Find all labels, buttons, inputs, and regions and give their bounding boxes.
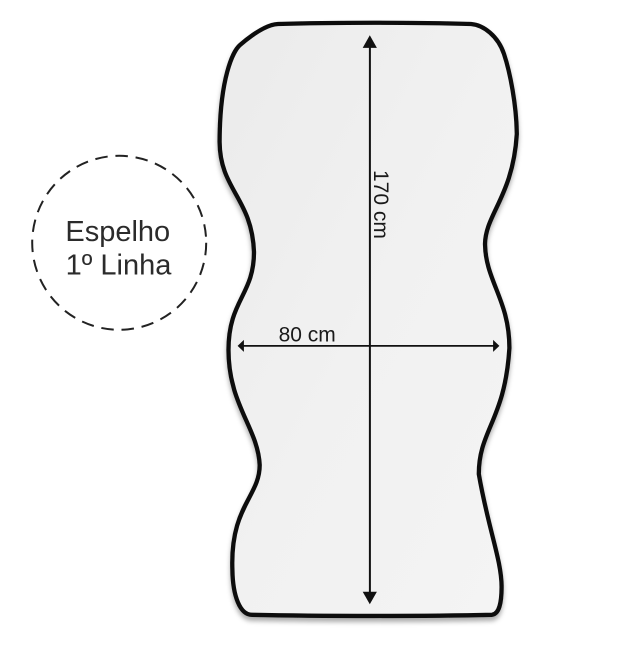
svg-text:1º Linha: 1º Linha	[66, 249, 173, 281]
svg-text:170 cm: 170 cm	[369, 170, 392, 239]
svg-text:Espelho: Espelho	[65, 216, 170, 248]
svg-text:80 cm: 80 cm	[279, 323, 336, 346]
